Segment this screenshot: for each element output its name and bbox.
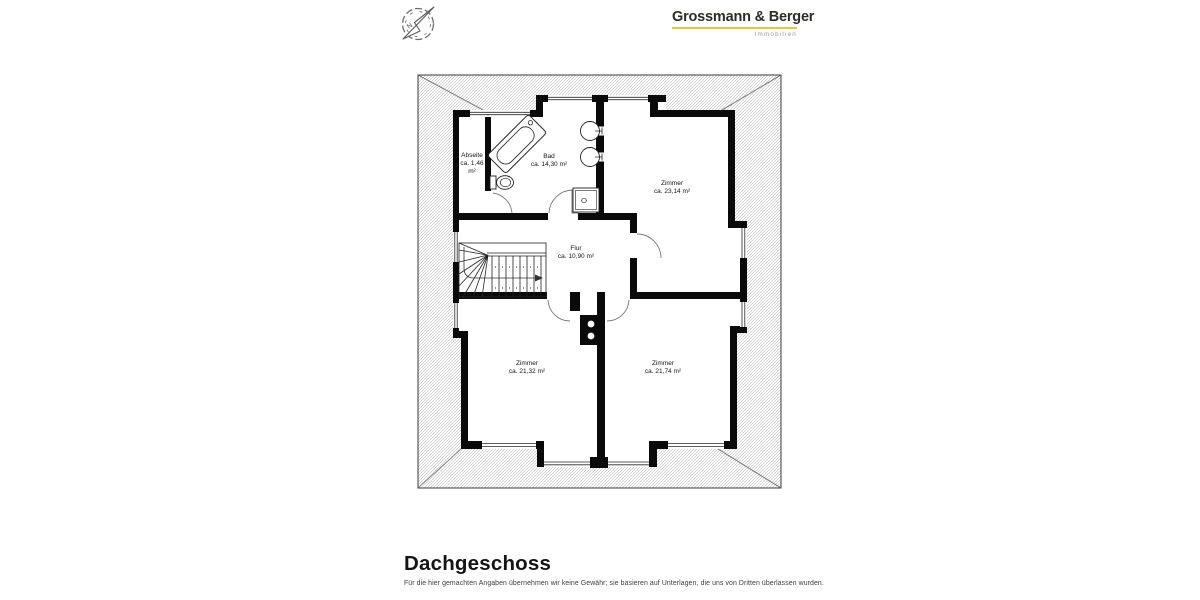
company-logo-subtitle: Immobilien: [672, 31, 797, 38]
shower: [573, 188, 599, 212]
room-label-zimmer-23-14: Zimmer ca. 23,14 m²: [654, 180, 690, 196]
room-label-zimmer-21-74: Zimmer ca. 21,74 m²: [645, 360, 681, 376]
company-logo-name: Grossmann & Berger: [672, 9, 797, 25]
toilet: [490, 176, 514, 190]
room-label-bad: Bad ca. 14,30 m²: [531, 153, 567, 169]
disclaimer-text: Für die hier gemachten Angaben übernehme…: [404, 580, 824, 587]
chimney: [580, 315, 602, 345]
staircase: [459, 243, 546, 297]
logo-underline: [672, 27, 797, 29]
room-label-flur: Flur ca. 10,90 m²: [558, 245, 594, 261]
room-label-zimmer-21-32: Zimmer ca. 21,32 m²: [509, 360, 545, 376]
floor-title: Dachgeschoss: [404, 552, 551, 576]
company-logo: Grossmann & Berger Immobilien: [672, 9, 797, 38]
floorplan-drawing: [390, 60, 800, 500]
room-label-abseite: Abseite ca. 1,46 m²: [460, 152, 483, 176]
compass-icon: N: [396, 2, 440, 46]
page: N Grossmann & Berger Immobilien: [0, 0, 1200, 600]
